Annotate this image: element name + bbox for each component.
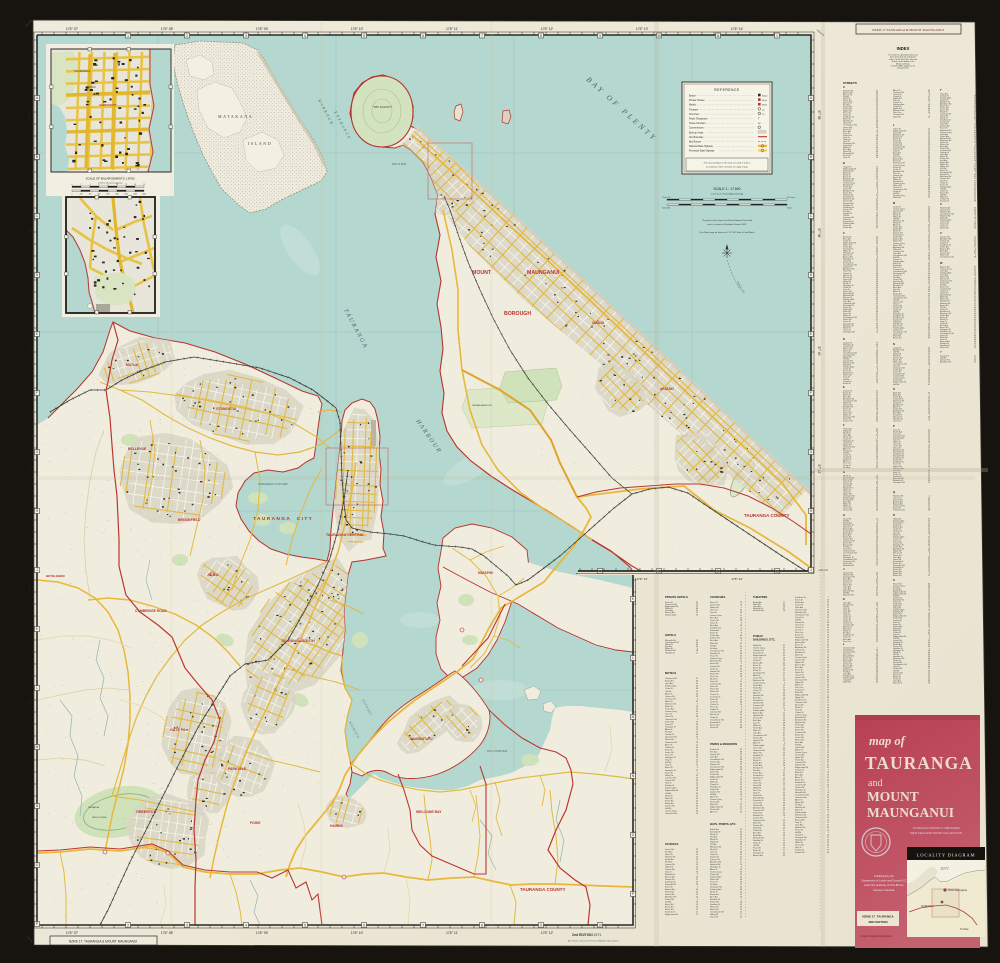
svg-text:10: 10	[598, 924, 602, 928]
svg-text:M: M	[893, 201, 895, 205]
svg-text:5: 5	[363, 34, 365, 38]
svg-text:Ch: Ch	[762, 109, 765, 111]
svg-text:Pacific Ave: Pacific Ave	[710, 634, 719, 637]
svg-text:DOMAIN: DOMAIN	[86, 86, 96, 89]
svg-text:Fraser St: Fraser St	[710, 698, 718, 701]
svg-text:TAURANGA: TAURANGA	[865, 753, 973, 773]
svg-text:Built-up Areas: Built-up Areas	[689, 131, 704, 134]
svg-text:Albert St: Albert St	[710, 811, 718, 814]
svg-text:Harington St: Harington St	[665, 756, 676, 759]
svg-text:37° 42′: 37° 42′	[28, 464, 32, 474]
svg-text:7: 7	[422, 924, 424, 928]
svg-text:Hull Rd: Hull Rd	[893, 384, 899, 386]
svg-text:2nd EDITION 1971: 2nd EDITION 1971	[572, 933, 601, 937]
svg-text:32: 32	[876, 595, 878, 597]
svg-text:POIKE: POIKE	[250, 821, 261, 825]
svg-text:Dive Cres: Dive Cres	[893, 420, 901, 423]
svg-text:16: 16	[876, 331, 878, 333]
svg-text:Otumoetai Rd: Otumoetai Rd	[665, 812, 677, 815]
svg-text:57: 57	[876, 565, 878, 567]
svg-text:PARKVALE: PARKVALE	[228, 767, 247, 771]
svg-text:176° 13′: 176° 13′	[636, 27, 649, 31]
svg-text:Grace Rd: Grace Rd	[665, 715, 673, 718]
svg-text:31: 31	[974, 362, 976, 364]
svg-text:BUILDINGS, ETC.: BUILDINGS, ETC.	[753, 638, 776, 642]
svg-text:2ND EDITION: 2ND EDITION	[868, 920, 887, 924]
svg-text:Tawa St: Tawa St	[843, 156, 850, 159]
svg-text:Mirrielees Rd: Mirrielees Rd	[710, 660, 721, 663]
svg-text:D: D	[843, 337, 845, 341]
svg-text:S: S	[893, 578, 895, 582]
svg-text:E: E	[810, 332, 812, 336]
svg-text:176° 10′: 176° 10′	[351, 27, 364, 31]
svg-text:10: 10	[974, 228, 976, 230]
svg-text:City Boundary: City Boundary	[689, 136, 704, 139]
svg-text:BAYS, POINTS, ETC.: BAYS, POINTS, ETC.	[710, 822, 737, 826]
svg-text:Fraser St: Fraser St	[665, 723, 673, 726]
svg-text:TAURANGA DISTRICT LIBRARIES: TAURANGA DISTRICT LIBRARIES	[912, 826, 959, 830]
svg-text:Otumoetai Rd: Otumoetai Rd	[893, 509, 905, 512]
svg-text:PILOT BAY: PILOT BAY	[391, 162, 407, 166]
svg-text:OMANU: OMANU	[592, 321, 605, 325]
svg-text:C: C	[843, 231, 845, 235]
svg-text:K: K	[843, 597, 845, 601]
svg-text:True North may be taken as 0°: True North may be taken as 0° 22′ 40″ Ea…	[699, 231, 755, 234]
svg-text:B: B	[843, 161, 845, 165]
svg-text:no evidence of the existence o: no evidence of the existence of a right …	[706, 166, 749, 169]
svg-text:4: 4	[90, 184, 91, 186]
svg-text:24: 24	[696, 813, 698, 815]
svg-text:Devonport Rd: Devonport Rd	[843, 330, 855, 333]
svg-text:TAURANGA: TAURANGA	[74, 69, 90, 73]
svg-text:The grid on this map is the No: The grid on this map is the North Nation…	[702, 219, 753, 222]
svg-text:Church St: Church St	[710, 693, 719, 696]
svg-text:McLean St: McLean St	[893, 681, 903, 684]
svg-text:Salisbury Ave: Salisbury Ave	[665, 685, 676, 688]
svg-text:Awanui Ave: Awanui Ave	[710, 723, 720, 726]
svg-text:Published by the: Published by the	[874, 874, 894, 878]
svg-text:16: 16	[143, 184, 145, 186]
svg-text:176° 08′: 176° 08′	[161, 931, 174, 935]
svg-text:37° 44′: 37° 44′	[28, 582, 32, 592]
svg-text:TAURANGA CENTRAL: TAURANGA CENTRAL	[326, 533, 365, 537]
svg-text:Tawa St: Tawa St	[710, 611, 717, 614]
svg-text:First Ave: First Ave	[710, 647, 717, 650]
svg-text:6: 6	[99, 184, 100, 186]
svg-text:Salisbury Ave: Salisbury Ave	[665, 613, 676, 616]
svg-text:Clarke St: Clarke St	[665, 687, 673, 690]
svg-text:McLean St: McLean St	[710, 713, 720, 716]
svg-text:Ranch Rd: Ranch Rd	[940, 228, 948, 230]
svg-text:HOTELS: HOTELS	[665, 633, 676, 637]
svg-text:40 Chains: 40 Chains	[787, 197, 795, 199]
svg-text:37° 36′: 37° 36′	[28, 110, 32, 120]
svg-text:7: 7	[481, 34, 483, 38]
svg-text:ARATAKI: ARATAKI	[660, 387, 674, 391]
svg-text:CAMBRIDGE ROAD: CAMBRIDGE ROAD	[135, 609, 167, 613]
svg-text:37° 40′: 37° 40′	[817, 346, 821, 356]
svg-text:5: 5	[304, 924, 306, 928]
svg-text:Surveyor General.: Surveyor General.	[873, 888, 895, 892]
svg-text:BETHLEHEM: BETHLEHEM	[46, 574, 65, 578]
svg-text:Grey St: Grey St	[665, 782, 672, 785]
svg-text:Fraser St: Fraser St	[710, 655, 718, 658]
svg-text:L: L	[36, 686, 38, 690]
svg-text:Waihi Rd: Waihi Rd	[893, 116, 901, 118]
svg-text:Cameron Rd: Cameron Rd	[710, 711, 721, 714]
svg-text:Private Houses: Private Houses	[689, 99, 705, 102]
svg-text:RACE COURSE: RACE COURSE	[92, 816, 107, 819]
svg-text:28: 28	[876, 510, 878, 512]
svg-text:Birch Ave: Birch Ave	[710, 639, 718, 642]
svg-text:18: 18	[928, 682, 930, 684]
svg-text:Awanui Ave: Awanui Ave	[753, 854, 763, 857]
svg-text:7: 7	[929, 421, 930, 423]
svg-text:HAMILTON ST: HAMILTON ST	[99, 103, 117, 107]
svg-text:55: 55	[928, 575, 930, 577]
svg-text:BELLEVUE: BELLEVUE	[128, 447, 147, 451]
svg-text:0: 0	[72, 184, 73, 186]
svg-text:TAURANGA: TAURANGA	[88, 806, 100, 809]
svg-text:Oceanbeach Rd: Oceanbeach Rd	[940, 257, 954, 259]
svg-text:50: 50	[876, 421, 878, 423]
svg-text:176° 07′: 176° 07′	[66, 931, 79, 935]
svg-text:LOCALITY DIAGRAM: LOCALITY DIAGRAM	[917, 853, 976, 858]
svg-text:176° 07′: 176° 07′	[66, 27, 79, 31]
svg-text:37° 48′: 37° 48′	[28, 818, 32, 828]
svg-text:NZMS 17: TAURANGA & MOUNT MAU: NZMS 17: TAURANGA & MOUNT MAUNGANUI	[69, 940, 137, 944]
svg-text:6: 6	[422, 34, 424, 38]
svg-text:Devonport Rd: Devonport Rd	[665, 736, 677, 739]
svg-text:Grace Rd: Grace Rd	[710, 726, 718, 729]
svg-text:8: 8	[108, 184, 109, 186]
svg-text:Aberdeen Rd: Aberdeen Rd	[940, 361, 951, 364]
svg-text:1971: 1971	[940, 866, 949, 871]
svg-text:P: P	[632, 892, 634, 896]
svg-text:Ranch Rd: Ranch Rd	[940, 347, 948, 349]
svg-text:1: 1	[776, 34, 778, 38]
svg-text:and: and	[868, 778, 882, 789]
svg-text:28: 28	[928, 510, 930, 512]
svg-text:Devonport Rd: Devonport Rd	[893, 481, 905, 484]
svg-text:Banks Ave: Banks Ave	[710, 629, 719, 632]
svg-text:TAURANGA CITY: TAURANGA CITY	[253, 516, 313, 522]
svg-text:Maxwells Rd: Maxwells Rd	[843, 565, 854, 567]
svg-text:10: 10	[116, 184, 118, 186]
svg-text:57: 57	[928, 197, 930, 199]
svg-text:P: P	[36, 922, 38, 926]
svg-text:PARKS & RESERVES: PARKS & RESERVES	[710, 742, 737, 746]
svg-text:Churches: Churches	[689, 113, 700, 116]
svg-text:37° 46′: 37° 46′	[28, 700, 32, 710]
svg-text:TAURANGA COUNTY: TAURANGA COUNTY	[520, 887, 566, 892]
svg-text:NZMS 17 TAURANGA: NZMS 17 TAURANGA	[862, 915, 894, 919]
svg-text:WAIKAREAO ESTUARY: WAIKAREAO ESTUARY	[258, 482, 288, 486]
svg-text:176° 14′: 176° 14′	[732, 577, 743, 581]
svg-text:Maxwells Rd: Maxwells Rd	[753, 610, 764, 612]
svg-text:Salisbury Ave: Salisbury Ave	[665, 787, 676, 790]
svg-text:18: 18	[876, 157, 878, 159]
svg-text:Albert St: Albert St	[665, 743, 673, 746]
svg-text:38: 38	[783, 610, 785, 612]
svg-text:66: 66	[876, 227, 878, 229]
svg-text:MAUNGATAPU: MAUNGATAPU	[410, 737, 433, 741]
svg-text:58: 58	[974, 201, 976, 203]
svg-text:F: F	[810, 391, 812, 395]
svg-text:map of: map of	[869, 734, 907, 748]
svg-text:First Ave: First Ave	[665, 731, 672, 734]
svg-text:E: E	[36, 332, 38, 336]
svg-text:9: 9	[540, 924, 542, 928]
svg-text:176° 11′: 176° 11′	[446, 931, 458, 935]
svg-text:11: 11	[716, 34, 720, 38]
svg-text:3: 3	[186, 924, 188, 928]
svg-text:1: 1	[127, 34, 129, 38]
svg-text:M: M	[36, 745, 39, 749]
svg-text:46: 46	[827, 852, 829, 854]
svg-text:F: F	[36, 391, 38, 395]
svg-text:TAURANGA COUNTY: TAURANGA COUNTY	[744, 513, 790, 518]
svg-text:Yards 500: Yards 500	[662, 208, 670, 210]
svg-text:Fraser St: Fraser St	[710, 706, 718, 709]
svg-text:PUBLIC: PUBLIC	[753, 634, 763, 638]
svg-text:P: P	[893, 424, 895, 428]
svg-text:N: N	[893, 342, 895, 346]
svg-text:TAURANGA SOUTH: TAURANGA SOUTH	[281, 639, 315, 643]
svg-text:Ch: Ch	[762, 114, 765, 116]
svg-text:33: 33	[876, 682, 878, 684]
svg-text:V: V	[940, 231, 942, 235]
svg-text:Bus Routes: Bus Routes	[689, 141, 702, 144]
svg-text:12: 12	[125, 184, 127, 186]
svg-text:Beach Rd: Beach Rd	[893, 575, 901, 577]
svg-text:B: B	[36, 155, 38, 159]
svg-text:M: M	[632, 715, 635, 719]
svg-text:43: 43	[783, 855, 785, 857]
svg-text:26: 26	[696, 614, 698, 616]
svg-text:Edgecumbe Rd: Edgecumbe Rd	[665, 914, 678, 916]
svg-text:14: 14	[974, 347, 976, 349]
svg-text:14: 14	[134, 184, 136, 186]
svg-text:176° 11′: 176° 11′	[446, 27, 458, 31]
svg-text:SCHOOLS: SCHOOLS	[665, 842, 678, 846]
svg-text:Totara St: Totara St	[710, 621, 718, 624]
svg-text:Harington St: Harington St	[665, 769, 676, 772]
svg-text:Department of Lands and Survey: Department of Lands and Survey N.Z.	[861, 879, 907, 883]
svg-text:Marsh St: Marsh St	[665, 766, 673, 769]
svg-text:Mount Maunganui: Mount Maunganui	[948, 889, 968, 892]
svg-text:25: 25	[740, 812, 742, 814]
svg-text:O: O	[893, 387, 895, 391]
svg-text:11: 11	[696, 914, 698, 916]
svg-text:Q: Q	[893, 490, 895, 494]
svg-text:MAUNGANUI: MAUNGANUI	[527, 270, 560, 276]
svg-text:1 inch to 11 chains (approx): 1 inch to 11 chains (approx)	[98, 182, 123, 185]
svg-text:Brown St: Brown St	[843, 382, 851, 385]
svg-text:MOUNT: MOUNT	[867, 789, 919, 804]
svg-text:4: 4	[245, 924, 247, 928]
svg-text:2: 2	[81, 184, 82, 186]
svg-text:7: 7	[877, 383, 878, 385]
svg-text:THEATRES: THEATRES	[753, 595, 767, 599]
svg-text:Theatres: Theatres	[689, 108, 699, 111]
svg-text:Victoria Rd: Victoria Rd	[843, 509, 852, 512]
svg-text:Beach: Beach	[762, 96, 768, 98]
svg-text:53: 53	[876, 641, 878, 643]
svg-text:Queens Rd: Queens Rd	[843, 421, 853, 423]
svg-text:JUDEA: JUDEA	[207, 573, 219, 577]
svg-text:H: H	[843, 513, 845, 517]
svg-text:“THE MOUNT”: “THE MOUNT”	[372, 104, 393, 109]
svg-text:NEW ZEALAND ROOM COLLECTION: NEW ZEALAND ROOM COLLECTION	[910, 831, 962, 835]
svg-text:NZMS 17 TAURANGA & MOUNT MAUNG: NZMS 17 TAURANGA & MOUNT MAUNGANUI	[872, 28, 945, 32]
svg-text:A.R. Shearer, Government Print: A.R. Shearer, Government Printer, Wellin…	[568, 940, 618, 943]
svg-text:Fraser St: Fraser St	[710, 685, 718, 688]
svg-text:House Numbers: House Numbers	[689, 122, 706, 125]
svg-text:176° 09′: 176° 09′	[256, 931, 269, 935]
svg-text:ISLAND: ISLAND	[248, 141, 272, 146]
svg-text:39: 39	[928, 338, 930, 340]
svg-text:8: 8	[481, 924, 483, 928]
svg-text:BROOKFIELD: BROOKFIELD	[178, 518, 201, 522]
svg-text:Waihi Rd: Waihi Rd	[843, 682, 851, 684]
svg-text:1 inch to 22 chains (Approxima: 1 inch to 22 chains (Approximately)	[711, 193, 744, 196]
svg-text:Y: Y	[940, 350, 942, 354]
svg-text:and is in terms of Geodetic Da: and is in terms of Geodetic Datum 1949.	[707, 223, 747, 226]
svg-text:SCALE OF ENLARGEMENTS 1:8750: SCALE OF ENLARGEMENTS 1:8750	[86, 177, 135, 181]
svg-text:6: 6	[363, 924, 365, 928]
svg-text:Otumoetai Rd: Otumoetai Rd	[665, 718, 677, 721]
svg-text:28: 28	[974, 257, 976, 259]
svg-text:9: 9	[599, 34, 601, 38]
svg-text:Hamilton St: Hamilton St	[665, 651, 675, 654]
svg-text:Albert St: Albert St	[665, 692, 673, 695]
svg-text:MAUNGANUI: MAUNGANUI	[867, 805, 954, 820]
svg-text:2: 2	[186, 34, 188, 38]
svg-text:3: 3	[245, 34, 247, 38]
svg-text:CHURCHES: CHURCHES	[710, 595, 725, 599]
svg-text:Provincial State Highway: Provincial State Highway	[689, 150, 715, 153]
svg-text:Clarke St: Clarke St	[710, 667, 718, 670]
svg-text:2: 2	[127, 924, 129, 928]
svg-text:11: 11	[696, 652, 698, 654]
svg-text:37° 38′: 37° 38′	[28, 228, 32, 238]
svg-text:The representation on this map: The representation on this map of a road…	[703, 162, 750, 165]
svg-text:Motel: Motel	[762, 104, 767, 107]
svg-text:Cameron Rd: Cameron Rd	[665, 697, 676, 700]
svg-text:Public Telephones: Public Telephones	[689, 119, 708, 121]
svg-text:37° 36′: 37° 36′	[817, 110, 821, 120]
svg-text:HAIRINI: HAIRINI	[330, 824, 343, 828]
svg-text:PRIVATE HOTELS: PRIVATE HOTELS	[665, 595, 688, 599]
svg-text:Waihi Rd: Waihi Rd	[893, 197, 901, 199]
svg-text:Te Puke: Te Puke	[960, 928, 969, 931]
svg-text:Yards: Yards	[787, 208, 792, 210]
svg-text:Chains 20: Chains 20	[662, 197, 670, 199]
svg-text:Motel: Motel	[762, 99, 767, 102]
svg-text:Domain Rd: Domain Rd	[795, 852, 804, 854]
svg-text:OTUMOETAI: OTUMOETAI	[216, 407, 236, 411]
svg-text:Pacific Ave: Pacific Ave	[843, 226, 852, 229]
svg-text:Maxwells Rd: Maxwells Rd	[843, 595, 854, 597]
svg-text:176° 12′: 176° 12′	[541, 931, 554, 935]
svg-text:37° 38′: 37° 38′	[817, 228, 821, 238]
svg-text:E: E	[843, 385, 845, 389]
svg-text:Brown St: Brown St	[665, 748, 673, 751]
svg-text:176° 12′: 176° 12′	[541, 27, 554, 31]
svg-text:Birch Ave: Birch Ave	[710, 616, 718, 619]
svg-text:MOTELS: MOTELS	[665, 671, 676, 675]
svg-text:SCALE 1 : 17,500: SCALE 1 : 17,500	[713, 187, 740, 191]
svg-text:54: 54	[928, 116, 930, 118]
svg-text:L: L	[632, 656, 634, 660]
svg-text:Motels: Motels	[689, 104, 697, 107]
svg-text:INDEX: INDEX	[897, 46, 910, 51]
svg-text:Totara St: Totara St	[710, 680, 718, 683]
svg-text:8: 8	[540, 34, 542, 38]
svg-text:R: R	[893, 513, 895, 517]
svg-text:176° 14′: 176° 14′	[731, 27, 744, 31]
svg-text:68: 68	[740, 727, 742, 729]
svg-text:under the authority of W.A.Bro: under the authority of W.A.Brown,	[864, 883, 904, 887]
svg-text:176° 13′: 176° 13′	[637, 577, 648, 581]
svg-text:Beach: Beach	[689, 96, 696, 98]
svg-text:Wharf St: Wharf St	[665, 794, 673, 797]
svg-text:4: 4	[304, 34, 306, 38]
svg-text:National State Highway: National State Highway	[689, 145, 714, 148]
svg-text:176° 10′: 176° 10′	[351, 931, 364, 935]
svg-text:Crown Copyright Reserved: Crown Copyright Reserved	[860, 934, 892, 938]
svg-text:Banks Ave: Banks Ave	[665, 680, 674, 683]
svg-text:REFERENCE: REFERENCE	[714, 88, 740, 92]
svg-text:176° 09′: 176° 09′	[256, 27, 269, 31]
svg-text:42: 42	[928, 384, 930, 386]
svg-text:enlargements.: enlargements.	[897, 67, 909, 70]
svg-text:Dive Cres: Dive Cres	[710, 609, 718, 612]
svg-text:64: 64	[740, 917, 742, 919]
svg-text:MOUNT: MOUNT	[472, 270, 492, 276]
svg-text:B: B	[810, 155, 812, 159]
svg-text:STREETS: STREETS	[843, 81, 857, 85]
svg-text:BOROUGH: BOROUGH	[504, 311, 531, 317]
svg-text:TAURANGA AIRPORT: TAURANGA AIRPORT	[472, 404, 493, 407]
svg-text:A: A	[843, 85, 845, 89]
svg-text:MATAKANA: MATAKANA	[218, 114, 253, 119]
svg-text:Beach Rd: Beach Rd	[893, 338, 901, 340]
svg-text:Grace Rd: Grace Rd	[710, 916, 718, 919]
svg-text:MATUA: MATUA	[126, 363, 139, 367]
svg-text:14: 14	[928, 482, 930, 484]
svg-text:U: U	[940, 202, 942, 206]
svg-text:37° 40′: 37° 40′	[28, 346, 32, 356]
svg-text:WELCOME BAY: WELCOME BAY	[416, 810, 442, 814]
svg-text:GREERTON: GREERTON	[136, 810, 157, 814]
svg-text:Conveniences: Conveniences	[689, 128, 704, 130]
